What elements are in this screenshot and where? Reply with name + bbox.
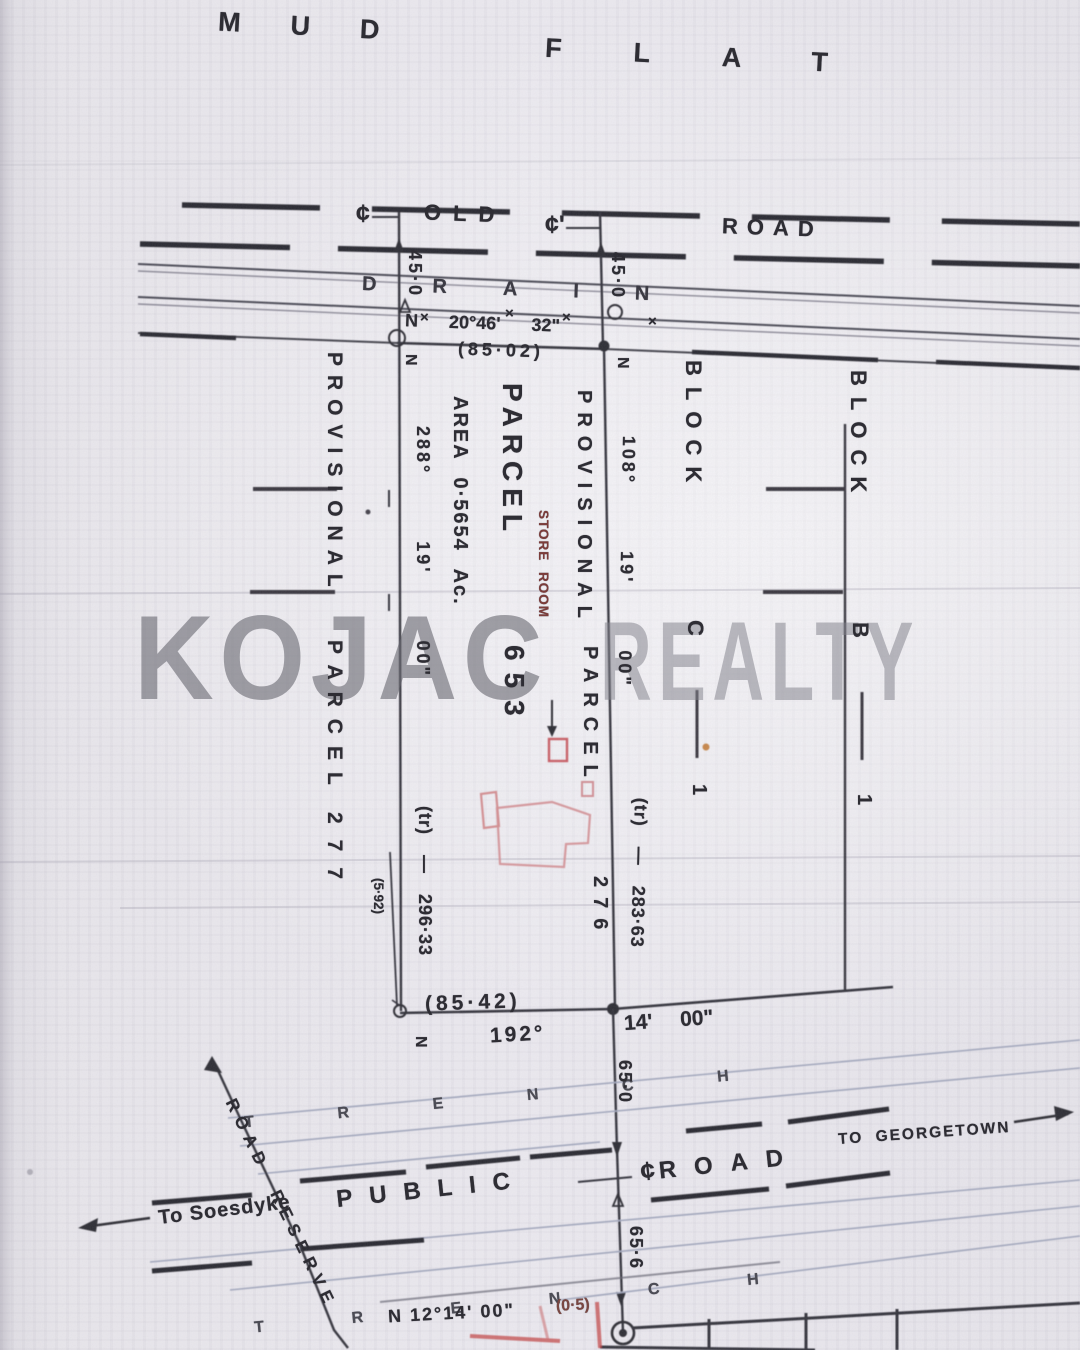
block-c-label: BLOCK <box>682 360 704 493</box>
west-line-bearing: 288° 19' 00" <box>414 426 432 678</box>
parcel-653-parcel: PARCEL <box>498 383 526 538</box>
parcel-277-parcel: PARCEL <box>324 640 345 797</box>
parcel-276-parcel: PARCEL <box>580 646 600 787</box>
block-c-number: 1 <box>689 784 709 795</box>
parcel-276-provisional: PROVISIONAL <box>574 390 594 627</box>
west-line-distance: (tr) — 296·33 <box>416 806 434 956</box>
survey-plan-scan: KOJAC REALTY MUD FLAT ¢ OLD ¢' ROAD DRAI… <box>0 0 1080 1350</box>
dim-45-east: 45·0 <box>609 252 627 300</box>
centerline-prime-icon: ¢' <box>545 213 565 238</box>
block-b-number: 1 <box>854 794 874 805</box>
parcel-277-number: 277 <box>324 812 345 895</box>
old-road-label-old: OLD <box>424 202 507 227</box>
dim-65-0: 65·0 <box>616 1060 634 1104</box>
block-b-letter: B <box>849 622 871 638</box>
station-n-label: N <box>402 354 418 366</box>
centerline-icon: ¢ <box>356 202 370 227</box>
east-line-bearing: 108° 19' 00" <box>616 436 638 688</box>
parcel-653-area: AREA 0·5654 Ac. <box>450 396 470 606</box>
block-c-letter: C <box>684 620 706 636</box>
west-offset-label: (5·92) <box>372 878 386 914</box>
south-distance-label: (85·42) <box>425 990 521 1014</box>
parcel-277-provisional: PROVISIONAL <box>324 352 345 596</box>
block-b-label: BLOCK <box>847 370 869 503</box>
store-room-label: STORE ROOM <box>537 510 551 618</box>
station-n-label: N <box>412 1036 428 1048</box>
cross-mark-icon: × <box>420 310 429 325</box>
south-bearing-deg: 192° <box>489 1023 545 1047</box>
bottom-offset-note: (0·5) <box>556 1297 591 1315</box>
north-distance-label: (85·02) <box>458 340 545 361</box>
centerline-icon: ¢ <box>639 1155 657 1186</box>
east-line-distance: (tr) — 283·63 <box>628 798 650 948</box>
dim-45-west: 45·0 <box>406 250 424 298</box>
cross-mark-icon: × <box>648 314 657 329</box>
cross-mark-icon: × <box>505 306 514 321</box>
station-n-label: N <box>614 357 630 369</box>
parcel-653-number: 653 <box>500 645 528 728</box>
old-road-label-road: ROAD <box>722 215 823 241</box>
dim-65-6: 65·6 <box>627 1226 645 1270</box>
parcel-276-number: 276 <box>590 876 610 939</box>
cross-mark-icon: × <box>562 310 571 325</box>
